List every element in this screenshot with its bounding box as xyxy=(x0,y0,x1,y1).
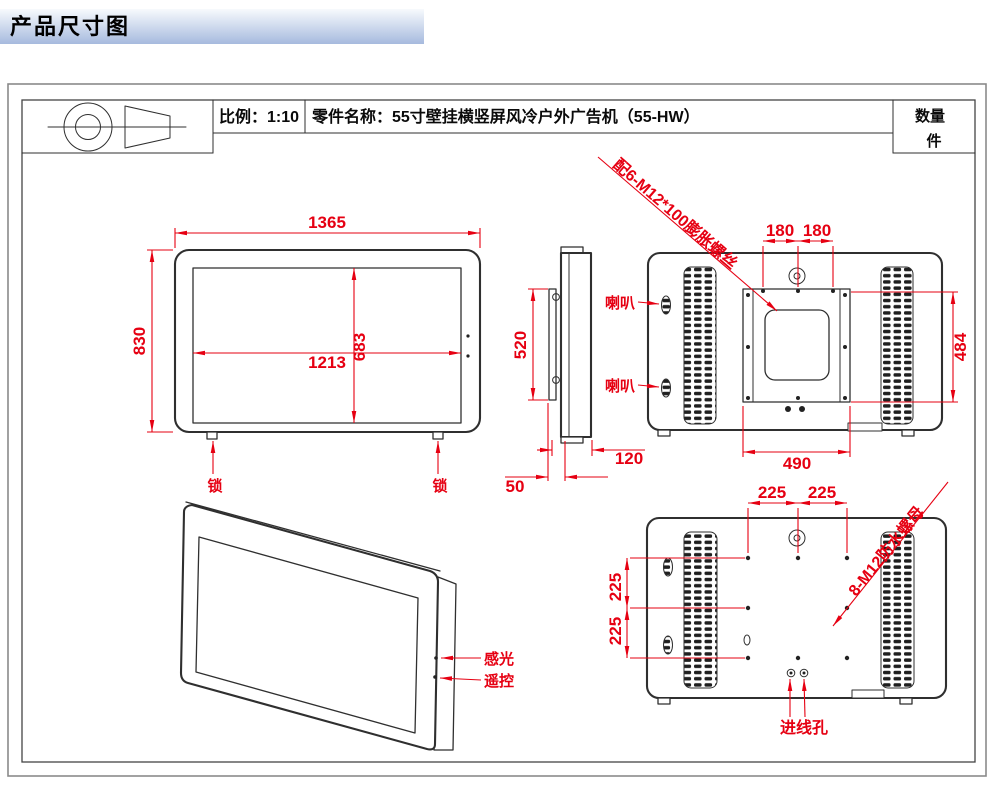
remote-sensor-dot-3d xyxy=(433,675,437,679)
speaker-top-label: 喇叭 xyxy=(605,294,635,312)
side-body xyxy=(561,253,591,437)
dim-text-484: 484 xyxy=(951,332,970,361)
dim-text-180-left: 180 xyxy=(766,221,794,240)
side-bottom-cap xyxy=(561,437,583,443)
dim-text-225-top-right: 225 xyxy=(808,483,836,502)
remote-control-label: 遥控 xyxy=(484,672,514,690)
remote-sensor-dot xyxy=(466,354,469,357)
quantity-unit-label: 件 xyxy=(926,132,941,150)
dim-text-225-top-left: 225 xyxy=(758,483,786,502)
dim-text-225-left-top: 225 xyxy=(606,573,625,601)
dim-text-1365: 1365 xyxy=(308,213,346,232)
quantity-label: 数量 xyxy=(915,107,945,125)
speaker-bottom-2 xyxy=(664,636,673,654)
dim-text-180-right: 180 xyxy=(803,221,831,240)
light-sensor-dot xyxy=(466,334,469,337)
speaker-top-2 xyxy=(664,558,673,576)
speaker-bottom xyxy=(662,379,671,397)
dim-text-225-left-bottom: 225 xyxy=(606,617,625,645)
dim-text-120: 120 xyxy=(615,449,643,468)
dimension-drawing: 比例：1:10 零件名称：55寸壁挂横竖屏风冷户外广告机（55-HW） 数量 件… xyxy=(0,0,1000,794)
part-name-label: 零件名称：55寸壁挂横竖屏风冷户外广告机（55-HW） xyxy=(311,107,700,126)
light-sensor-label: 感光 xyxy=(484,650,514,668)
scale-label: 比例：1:10 xyxy=(219,107,299,126)
vesa-mount-plate xyxy=(743,289,850,402)
light-sensor-dot-3d xyxy=(434,656,438,660)
dim-text-683: 683 xyxy=(350,333,369,361)
cable-entry-label: 进线孔 xyxy=(780,718,828,737)
vent-right xyxy=(881,267,913,424)
speaker-bottom-label: 喇叭 xyxy=(605,377,635,395)
bottom-back-view: 225 225 225 225 8-M12防水螺母 进线孔 xyxy=(606,482,948,737)
vent-left-2 xyxy=(684,532,717,688)
speaker-top xyxy=(662,296,671,314)
lock-right-label: 锁 xyxy=(432,477,447,495)
lock-left-label: 锁 xyxy=(207,477,222,495)
dim-text-830: 830 xyxy=(130,327,149,355)
lock-tab-left xyxy=(207,432,217,439)
vent-left xyxy=(684,267,716,424)
dim-text-1213: 1213 xyxy=(308,353,346,372)
lock-tab-right xyxy=(433,432,443,439)
dim-text-50: 50 xyxy=(506,477,525,496)
front-screen xyxy=(193,268,461,423)
dim-text-520: 520 xyxy=(511,331,530,359)
dim-text-490: 490 xyxy=(783,454,811,473)
